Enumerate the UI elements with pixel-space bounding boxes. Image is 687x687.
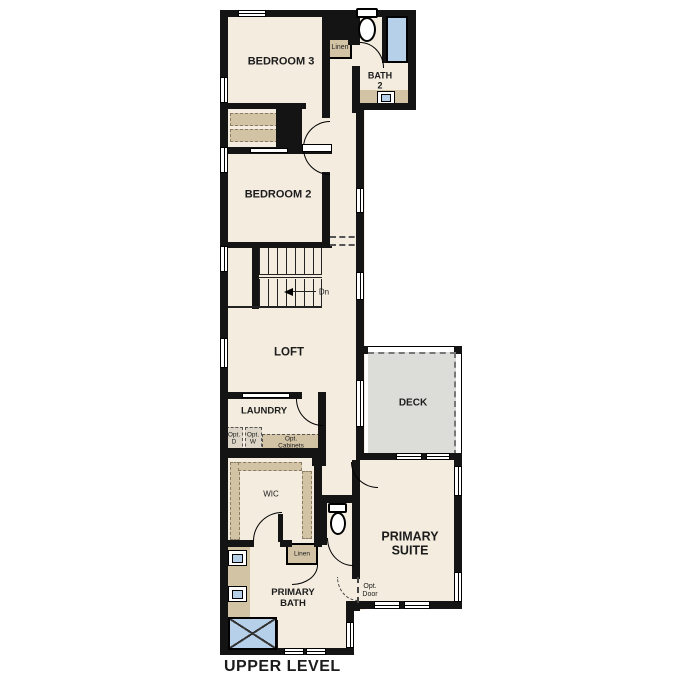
window	[220, 246, 228, 272]
wall-bath2-bottom	[356, 103, 416, 110]
window	[238, 10, 266, 17]
closet-shelf	[230, 113, 278, 126]
toilet-bowl	[330, 512, 346, 535]
primary-bath-label: PRIMARY BATH	[271, 588, 314, 610]
opt-washer-line2: W	[247, 439, 259, 446]
stairs-upper-flight	[259, 248, 322, 274]
bath2-label: BATH 2	[368, 71, 392, 92]
window	[396, 453, 422, 460]
wall-wc-left	[320, 495, 327, 545]
toilet-bowl	[358, 17, 376, 42]
bath2-sink-basin	[381, 94, 391, 102]
wic-label: WIC	[263, 489, 279, 498]
bath2-label-line1: BATH	[368, 71, 392, 81]
stair-landing-line	[259, 274, 322, 275]
primary-sink-1-basin	[232, 554, 243, 563]
wall-laundry-bottom	[220, 448, 322, 458]
linen-top-label: Linen	[331, 44, 348, 52]
opt-cabinets-label: Opt. Cabinets	[278, 436, 304, 451]
window	[404, 601, 430, 609]
wall-right-top	[408, 10, 416, 110]
wall-right-mid	[356, 110, 364, 356]
wic-shelf-top	[238, 462, 302, 471]
exterior-patch	[354, 610, 366, 655]
bedroom-door-leaf	[302, 144, 332, 152]
wall-left	[220, 10, 228, 655]
opt-cabinets-line1: Opt.	[278, 436, 304, 443]
opt-dryer-label: Opt. D	[228, 432, 240, 447]
wall-bedroom3-right	[322, 17, 330, 118]
opt-cabinets-line2: Cabinets	[278, 443, 304, 450]
primary-suite-line1: PRIMARY	[381, 530, 438, 544]
opt-washer-line1: Opt.	[247, 432, 259, 439]
stairs-down-arrow-line	[293, 291, 316, 292]
bedroom3-label: BEDROOM 3	[248, 56, 315, 69]
window	[426, 453, 450, 460]
closet-opening	[250, 148, 288, 153]
opt-door-label: Opt. Door	[362, 583, 377, 599]
wall-corridor-bath2	[352, 66, 360, 113]
wic-shelf-right	[302, 471, 312, 539]
plan-title: UPPER LEVEL	[224, 658, 341, 676]
window	[356, 380, 364, 427]
opt-door-line1: Opt.	[362, 583, 377, 591]
bedroom2-label: BEDROOM 2	[245, 189, 312, 202]
bathtub	[386, 16, 408, 63]
bath2-label-line2: 2	[368, 81, 392, 91]
laundry-opening	[242, 393, 290, 398]
wall-wic-bottom-left	[222, 540, 254, 547]
floor-plan: BEDROOM 3 Linen BATH 2 BEDROOM 2 Dn LOFT…	[0, 0, 687, 687]
window	[220, 338, 228, 368]
window	[284, 648, 304, 655]
window	[374, 601, 400, 609]
wic-shelf-left	[230, 462, 240, 540]
stair-edge-line	[228, 306, 322, 308]
opt-door-line2: Door	[362, 591, 377, 599]
linen-bottom-label: Linen	[294, 550, 310, 557]
primary-bath-line2: BATH	[271, 599, 314, 610]
opt-dryer-line1: Opt.	[228, 432, 240, 439]
laundry-label: LAUNDRY	[241, 407, 287, 418]
window	[346, 622, 354, 648]
shower	[228, 617, 277, 650]
deck-label: DECK	[399, 397, 427, 409]
deck-rail-right	[455, 346, 462, 458]
window	[220, 77, 228, 103]
opt-washer-label: Opt. W	[247, 432, 259, 447]
wall-bedroom2-right	[322, 172, 330, 242]
opt-door-leaf	[357, 577, 359, 603]
stair-landing-line	[259, 277, 322, 278]
window	[356, 188, 364, 213]
window	[454, 466, 462, 496]
wall-closet-block	[276, 107, 302, 147]
stairs-down-label: Dn	[319, 287, 329, 296]
window	[356, 272, 364, 300]
window	[454, 572, 462, 602]
primary-suite-label: PRIMARY SUITE	[381, 530, 438, 559]
stairs-down-arrowhead	[284, 288, 293, 296]
opt-dryer-line2: D	[228, 439, 240, 446]
wic-door-leaf	[278, 514, 283, 542]
primary-sink-2-basin	[232, 590, 243, 599]
primary-suite-line2: SUITE	[381, 544, 438, 558]
loft-label: LOFT	[274, 346, 304, 359]
closet-shelf	[230, 129, 278, 142]
window	[220, 147, 228, 173]
window	[306, 648, 326, 655]
wall-stair-side	[252, 243, 259, 309]
